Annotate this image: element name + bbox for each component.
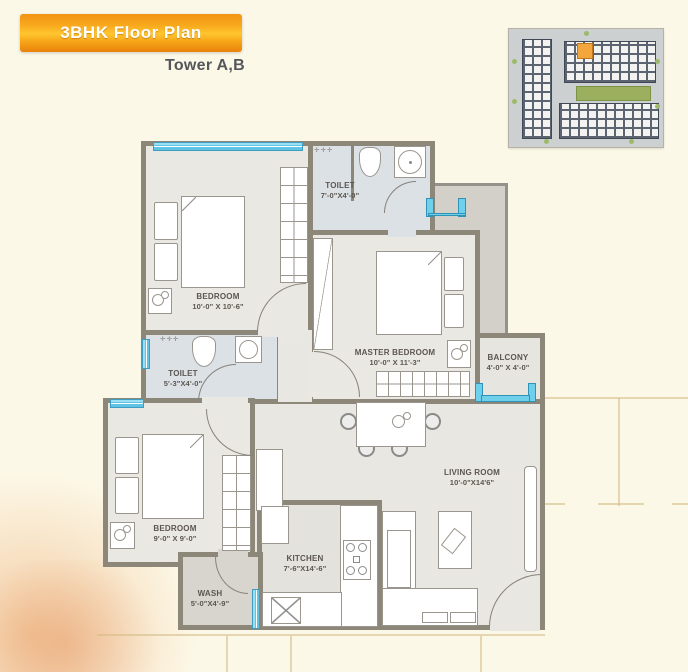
sofa-cushion [387, 530, 411, 588]
sofa-cushion [450, 612, 476, 623]
sliding-wardrobe [313, 238, 333, 350]
balcony-railing [481, 395, 530, 402]
room-label-toilet-1: TOILET 7'-0"X4'-0" [300, 181, 380, 201]
table-decor [403, 412, 411, 420]
tv-unit [524, 466, 537, 572]
room-dims: 4'-0" X 4'-0" [470, 363, 546, 373]
bg-outline-line [545, 397, 688, 399]
window [142, 339, 150, 369]
bg-outline-line [618, 398, 620, 506]
bed-pillow [444, 294, 464, 328]
key-plan-map [508, 28, 664, 148]
washbasin-drain [409, 161, 412, 164]
window [110, 399, 144, 408]
entry-door-threshold [428, 213, 466, 216]
dining-chair [340, 413, 357, 430]
room-dims: 5'-0"X4'-9" [170, 599, 250, 609]
room-dims: 10'-0" X 10'-6" [158, 302, 278, 312]
floor-plan-page: 3BHK Floor Plan Tower A,B [0, 0, 688, 672]
bed-pillow [444, 257, 464, 291]
tree-icon [629, 139, 634, 144]
fridge [261, 506, 289, 544]
watercolor-blob-small [0, 560, 170, 672]
room-name: BEDROOM [158, 292, 278, 302]
tree-icon [544, 139, 549, 144]
room-name: TOILET [145, 369, 221, 379]
bed-sheet-fold [190, 435, 203, 448]
wardrobe [376, 371, 470, 397]
bg-outline-line [545, 503, 565, 505]
key-plan-building-left [522, 39, 552, 139]
passage-cabinet [256, 449, 283, 511]
page-title: 3BHK Floor Plan [60, 23, 202, 42]
bg-outline-line [290, 636, 292, 672]
room-label-bedroom-1: BEDROOM 10'-0" X 10'-6" [158, 292, 278, 312]
room-dims: 7'-0"X4'-0" [300, 191, 380, 201]
shower-icon: ✛✛✛ [160, 335, 179, 343]
tree-icon [584, 31, 589, 36]
stove-burner [346, 543, 355, 552]
tree-icon [512, 59, 517, 64]
washbasin-icon [239, 340, 258, 359]
room-dims: 7'-6"X14'-6" [250, 564, 360, 574]
room-name: MASTER BEDROOM [330, 348, 460, 358]
bg-outline-line [226, 636, 228, 672]
tree-icon [512, 99, 517, 104]
bg-outline-line [672, 503, 688, 505]
stove-burner [358, 543, 367, 552]
window [252, 589, 260, 629]
room-name: BALCONY [470, 353, 546, 363]
room-label-living-room: LIVING ROOM 10'-0"X14'6" [419, 468, 525, 488]
room-label-master-bedroom: MASTER BEDROOM 10'-0" X 11'-3" [330, 348, 460, 368]
room-name: TOILET [300, 181, 380, 191]
dining-chair [424, 413, 441, 430]
shower-icon: ✛✛✛ [314, 146, 333, 154]
door-gap [278, 330, 312, 402]
room-name: LIVING ROOM [419, 468, 525, 478]
bed-sheet-fold [182, 197, 196, 211]
bed-sheet-fold [428, 252, 441, 265]
room-label-toilet-2: TOILET 5'-3"X4'-0" [145, 369, 221, 389]
dining-table [356, 402, 426, 447]
bed-pillow [115, 437, 139, 474]
sofa-cushion [422, 612, 448, 623]
bed-pillow [115, 477, 139, 514]
sink-icon [271, 597, 301, 624]
room-label-wash: WASH 5'-0"X4'-9" [170, 589, 250, 609]
key-plan-lawn [576, 86, 651, 101]
key-plan-building-bottom [559, 103, 659, 139]
bg-outline-line [598, 503, 644, 505]
bg-outline-line [480, 636, 482, 672]
room-name: BEDROOM [123, 524, 227, 534]
bed-pillow [154, 243, 178, 281]
bed-pillow [154, 202, 178, 240]
bg-outline-line [97, 634, 545, 636]
room-name: WASH [170, 589, 250, 599]
tree-icon [655, 59, 660, 64]
room-label-bedroom-2: BEDROOM 9'-0" X 9'-0" [123, 524, 227, 544]
tree-icon [655, 104, 660, 109]
window [153, 142, 303, 151]
title-banner: 3BHK Floor Plan [20, 14, 242, 52]
room-dims: 10'-0"X14'6" [419, 478, 525, 488]
key-plan-highlighted-unit [577, 43, 593, 59]
tower-subtitle: Tower A,B [55, 57, 245, 75]
room-dims: 5'-3"X4'-0" [145, 379, 221, 389]
room-dims: 9'-0" X 9'-0" [123, 534, 227, 544]
bedside-decor [460, 344, 468, 352]
room-dims: 10'-0" X 11'-3" [330, 358, 460, 368]
room-label-balcony: BALCONY 4'-0" X 4'-0" [470, 353, 546, 373]
room-name: KITCHEN [250, 554, 360, 564]
room-label-kitchen: KITCHEN 7'-6"X14'-6" [250, 554, 360, 574]
door-gap [388, 227, 416, 237]
